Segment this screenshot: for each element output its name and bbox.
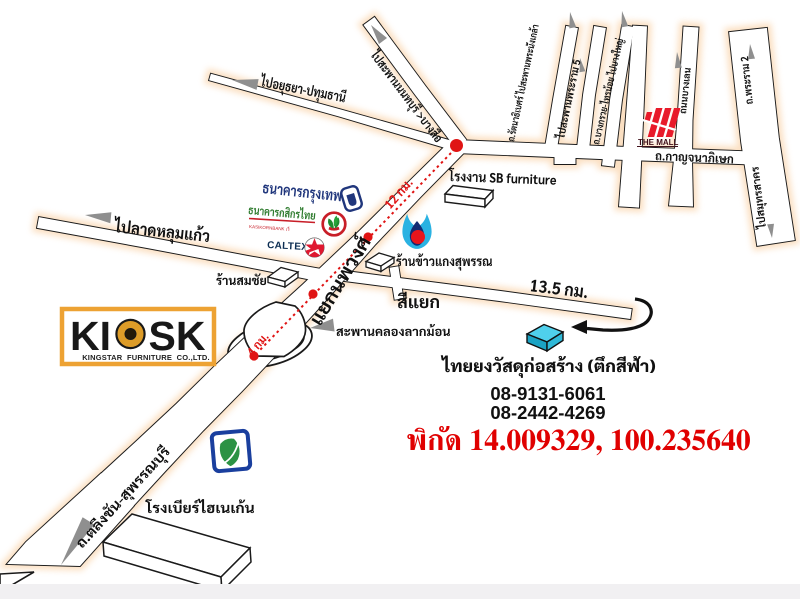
svg-text:08-2442-4269: 08-2442-4269	[490, 402, 605, 423]
svg-text:KINGSTAR FURNITURE CO.,LTD.: KINGSTAR FURNITURE CO.,LTD.	[82, 353, 210, 362]
svg-text:THE MALL: THE MALL	[638, 138, 679, 147]
svg-text:CALTEX: CALTEX	[267, 240, 309, 253]
svg-text:08-9131-6061: 08-9131-6061	[490, 383, 605, 404]
